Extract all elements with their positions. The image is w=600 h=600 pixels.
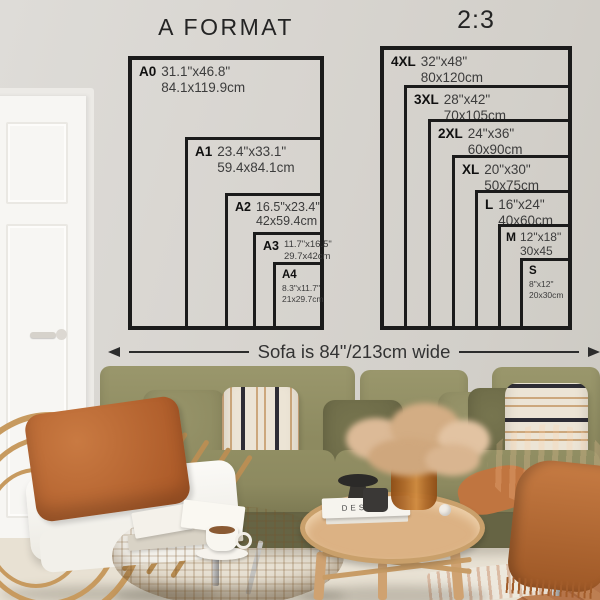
size-label-xl: XL 20"x30" 50x75cm (455, 158, 569, 193)
size-name: XL (462, 162, 479, 193)
size-dims: 23.4"x33.1" 59.4x84.1cm (217, 144, 294, 175)
size-inches: 12"x18" (520, 231, 561, 245)
size-label-a0: A0 31.1"x46.8" 84.1x119.9cm (132, 60, 320, 95)
size-cm: 20x30cm (529, 290, 569, 301)
sofa-width-annotation: Sofa is 84"/213cm wide (108, 341, 600, 363)
size-inches: 8.3"x11.7" (282, 283, 321, 294)
door-handle (30, 332, 56, 338)
size-label-a3: A3 11.7"x16.5" 29.7x42cm (256, 235, 321, 263)
size-name: M (506, 231, 516, 259)
a-format-title: A FORMAT (128, 14, 324, 41)
black-cup (363, 488, 388, 512)
black-bowl (338, 474, 378, 487)
door-panel-upper (6, 122, 68, 204)
size-name: 4XL (391, 54, 416, 85)
size-inches: 32"x48" (421, 54, 483, 70)
size-inches: 20"x30" (484, 162, 539, 178)
size-name: A3 (263, 239, 279, 263)
living-room-size-guide-scene: A FORMAT A0 31.1"x46.8" 84.1x119.9cm A1 … (0, 0, 600, 600)
size-label-m: M 12"x18" 30x45 (501, 227, 569, 259)
size-name: 2XL (438, 126, 463, 157)
size-cm: 84.1x119.9cm (161, 80, 245, 96)
size-inches: 11.7"x16.5" (284, 239, 332, 251)
size-label-a2: A2 16.5"x23.4" 42x59.4cm (228, 196, 321, 229)
white-sphere-decor (439, 504, 451, 516)
size-cm: 29.7x42cm (284, 251, 332, 263)
size-inches: 28"x42" (444, 92, 506, 108)
size-cm: 21x29.7cm (282, 294, 321, 305)
size-inches: 23.4"x33.1" (217, 144, 294, 160)
arrow-right-icon (588, 347, 600, 357)
throw-blanket-drape (506, 457, 600, 595)
size-name: A1 (195, 144, 212, 175)
size-inches: 24"x36" (468, 126, 523, 142)
ratio-2-3-title: 2:3 (380, 6, 572, 35)
size-label-a4: A4 8.3"x11.7" 21x29.7cm (276, 265, 321, 305)
size-dims: 24"x36" 60x90cm (468, 126, 523, 157)
size-label-a1: A1 23.4"x33.1" 59.4x84.1cm (188, 140, 321, 175)
size-dims: 8"x12" 20x30cm (529, 279, 569, 301)
size-dims: 8.3"x11.7" 21x29.7cm (282, 283, 321, 305)
size-inches: 8"x12" (529, 279, 569, 290)
cup-handle (235, 532, 252, 549)
arrow-left-icon (108, 347, 120, 357)
size-cm: 42x59.4cm (256, 214, 320, 228)
size-cm: 30x45 (520, 245, 561, 259)
size-cm: 59.4x84.1cm (217, 160, 294, 176)
dried-flowers (425, 444, 480, 476)
size-box-a4: A4 8.3"x11.7" 21x29.7cm (273, 262, 324, 330)
size-label-3xl: 3XL 28"x42" 70x105cm (407, 88, 569, 123)
size-label-2xl: 2XL 24"x36" 60x90cm (431, 122, 569, 157)
size-name: S (529, 265, 569, 278)
size-dims: 16.5"x23.4" 42x59.4cm (256, 200, 320, 229)
size-name: A2 (235, 200, 251, 229)
size-inches: 31.1"x46.8" (161, 64, 245, 80)
size-dims: 32"x48" 80x120cm (421, 54, 483, 85)
size-label-s: S 8"x12" 20x30cm (523, 261, 569, 301)
size-dims: 31.1"x46.8" 84.1x119.9cm (161, 64, 245, 95)
size-label-l: L 16"x24" 40x60cm (478, 193, 569, 228)
arrow-line-right (459, 351, 579, 353)
size-cm: 80x120cm (421, 70, 483, 86)
sofa-width-text: Sofa is 84"/213cm wide (258, 341, 451, 363)
coffee-surface (209, 526, 235, 534)
size-label-4xl: 4XL 32"x48" 80x120cm (384, 50, 568, 85)
rust-pillow (23, 395, 192, 524)
size-name: L (485, 197, 493, 228)
size-inches: 16"x24" (498, 197, 553, 213)
size-dims: 20"x30" 50x75cm (484, 162, 539, 193)
arrow-line-left (129, 351, 249, 353)
size-name: A4 (282, 269, 321, 282)
size-inches: 16.5"x23.4" (256, 200, 320, 214)
size-dims: 11.7"x16.5" 29.7x42cm (284, 239, 332, 263)
door-handle-rose (56, 329, 67, 340)
size-name: A0 (139, 64, 156, 95)
size-box-s: S 8"x12" 20x30cm (520, 258, 572, 330)
size-dims: 12"x18" 30x45 (520, 231, 561, 259)
